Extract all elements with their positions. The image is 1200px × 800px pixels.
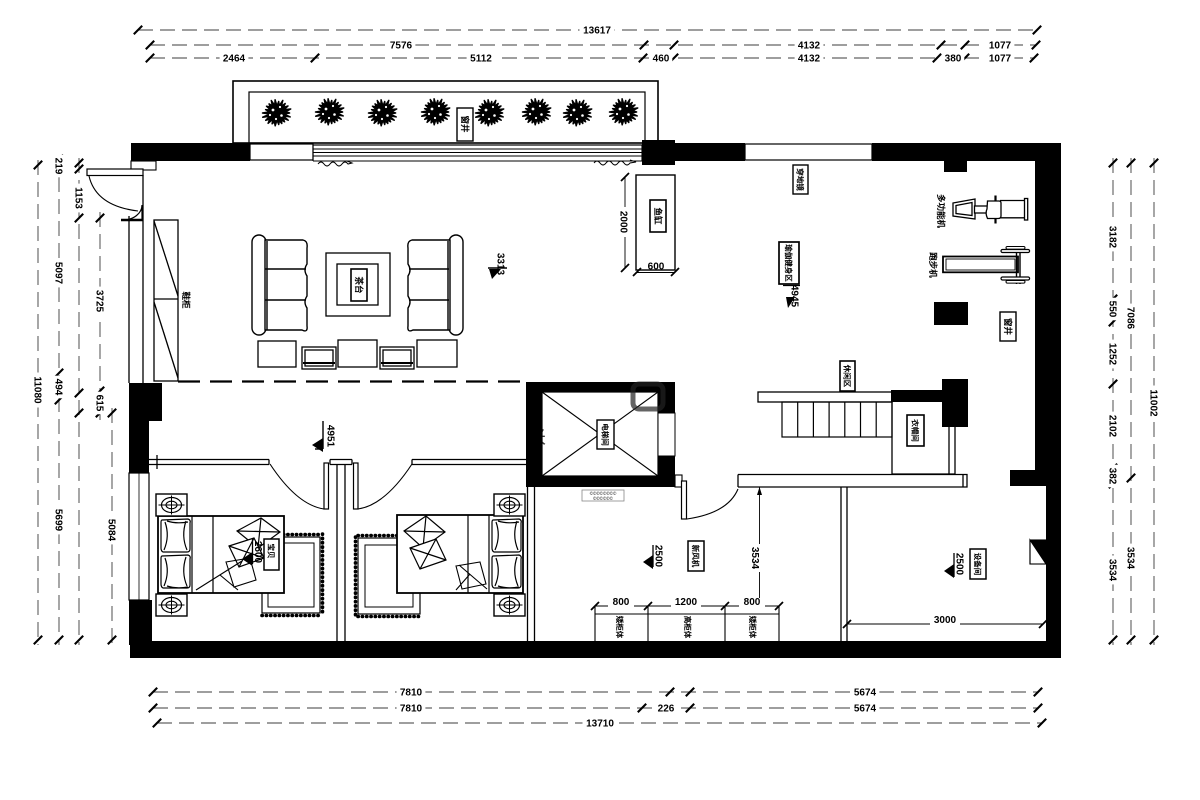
svg-text:219: 219 [53, 158, 64, 175]
svg-text:4132: 4132 [798, 41, 821, 52]
svg-text:3534: 3534 [1125, 547, 1136, 570]
svg-text:3182: 3182 [1107, 226, 1118, 249]
svg-text:5674: 5674 [854, 688, 877, 699]
svg-text:高柜体: 高柜体 [683, 616, 693, 639]
svg-text:2102: 2102 [1107, 415, 1118, 438]
svg-text:矮柜体: 矮柜体 [615, 615, 625, 639]
svg-text:550: 550 [1107, 301, 1118, 318]
svg-text:460: 460 [653, 54, 670, 65]
svg-text:600: 600 [648, 262, 665, 273]
svg-text:3000: 3000 [934, 615, 957, 626]
svg-text:1077: 1077 [989, 54, 1012, 65]
svg-text:4132: 4132 [798, 54, 821, 65]
svg-text:电梯间: 电梯间 [601, 423, 611, 446]
svg-text:米: 米 [527, 427, 546, 449]
svg-text:衣帽间: 衣帽间 [911, 419, 921, 442]
svg-text:226: 226 [658, 704, 675, 715]
svg-text:宝贝: 宝贝 [267, 544, 277, 559]
svg-text:7810: 7810 [400, 704, 423, 715]
svg-text:窗井: 窗井 [1003, 318, 1013, 336]
svg-text:设备间: 设备间 [973, 553, 983, 576]
svg-text:鞋柜: 鞋柜 [181, 291, 191, 309]
svg-text:11002: 11002 [1148, 389, 1159, 417]
svg-text:1153: 1153 [73, 187, 84, 209]
svg-text:5097: 5097 [53, 262, 64, 285]
svg-text:2600: 2600 [252, 541, 263, 564]
svg-text:5084: 5084 [106, 519, 117, 542]
svg-text:矮柜体: 矮柜体 [748, 615, 758, 639]
svg-text:5112: 5112 [470, 54, 492, 65]
svg-text:13617: 13617 [583, 26, 611, 37]
svg-text:1200: 1200 [675, 597, 698, 608]
svg-text:穿地镜: 穿地镜 [796, 168, 806, 191]
svg-text:鱼缸: 鱼缸 [653, 207, 663, 225]
svg-text:窗井: 窗井 [460, 115, 470, 133]
svg-text:494: 494 [53, 379, 64, 396]
svg-text:11080: 11080 [32, 376, 43, 404]
svg-text:瑜伽健身区: 瑜伽健身区 [784, 244, 794, 282]
svg-text:7086: 7086 [1125, 307, 1136, 330]
svg-text:2000: 2000 [618, 211, 629, 234]
svg-text:休闲区: 休闲区 [843, 364, 853, 388]
svg-text:7576: 7576 [390, 41, 413, 52]
svg-text:380: 380 [945, 54, 962, 65]
svg-text:13710: 13710 [586, 719, 614, 730]
svg-text:7810: 7810 [400, 688, 423, 699]
svg-text:2500: 2500 [653, 545, 664, 568]
svg-text:多功能机: 多功能机 [936, 194, 946, 229]
svg-text:跑步机: 跑步机 [928, 252, 938, 278]
svg-text:382: 382 [1107, 468, 1118, 485]
svg-text:茶台: 茶台 [354, 275, 364, 294]
svg-text:3534: 3534 [749, 547, 760, 570]
svg-text:2500: 2500 [954, 553, 965, 576]
svg-text:2464: 2464 [223, 54, 246, 65]
svg-text:5699: 5699 [53, 509, 64, 532]
svg-text:5674: 5674 [854, 704, 877, 715]
svg-text:4951: 4951 [325, 425, 336, 448]
svg-text:800: 800 [613, 597, 630, 608]
svg-text:3725: 3725 [94, 290, 105, 313]
svg-text:3534: 3534 [1107, 559, 1118, 582]
svg-text:615: 615 [94, 395, 105, 412]
svg-text:1077: 1077 [989, 41, 1012, 52]
svg-text:1252: 1252 [1107, 343, 1118, 366]
svg-text:新风机: 新风机 [691, 545, 701, 568]
svg-text:©©©©©©: ©©©©©© [593, 495, 614, 501]
svg-text:800: 800 [744, 597, 761, 608]
